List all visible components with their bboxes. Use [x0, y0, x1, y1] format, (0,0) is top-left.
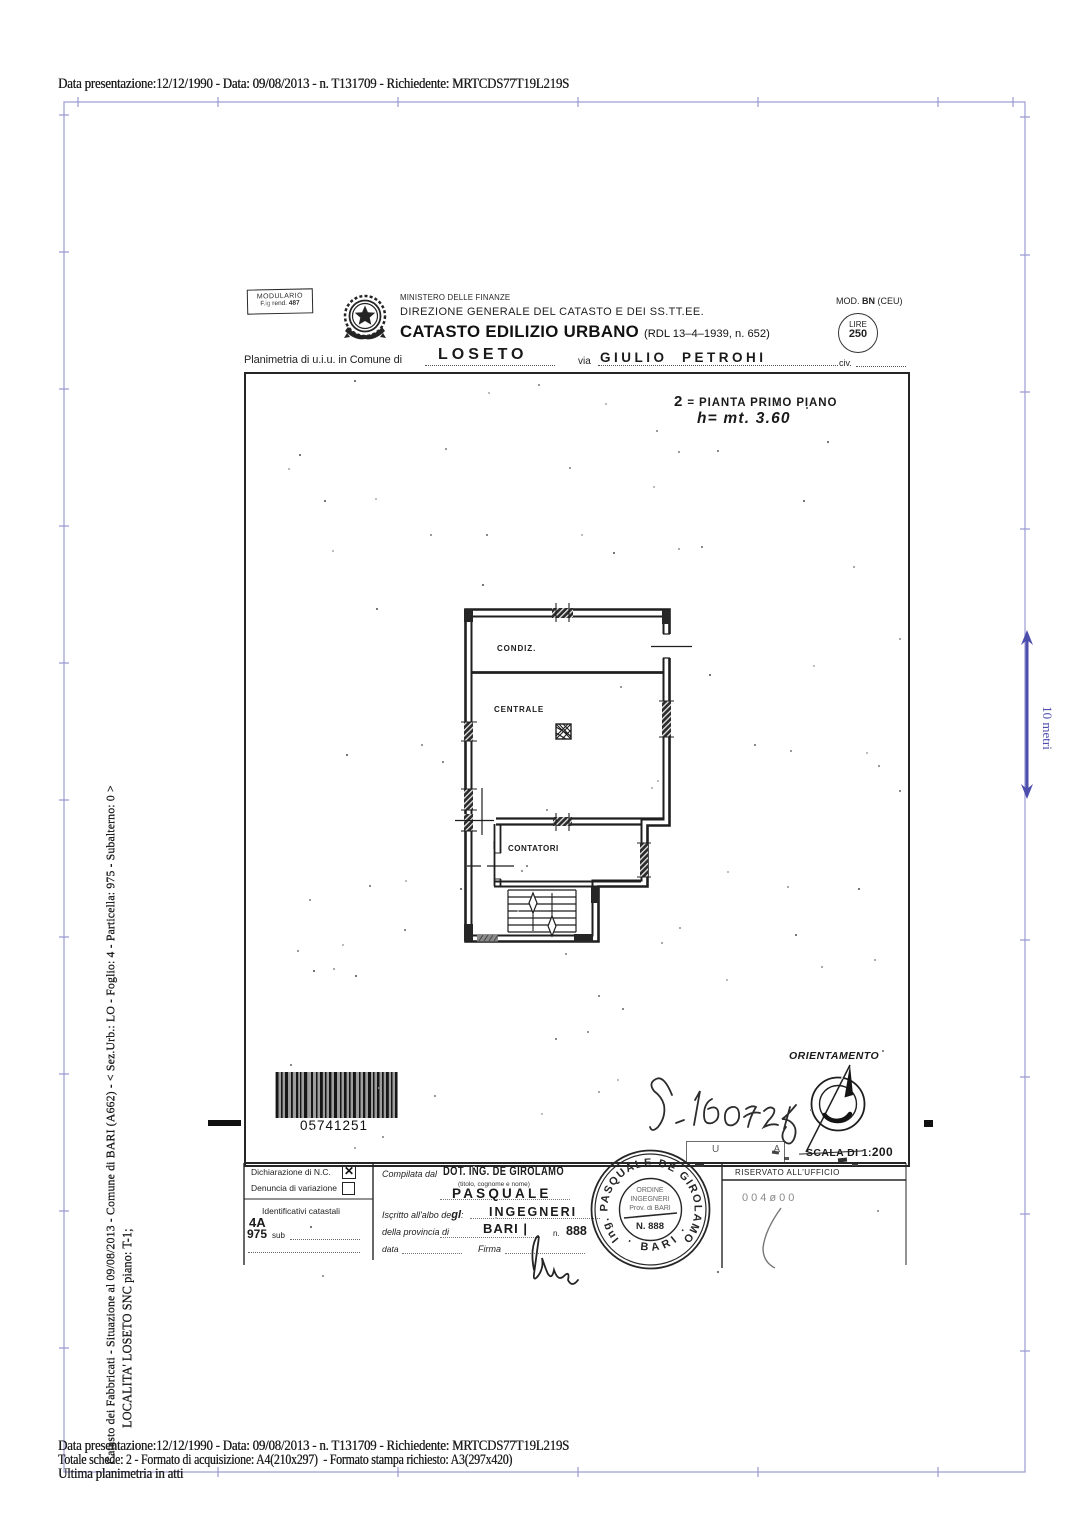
svg-text:ORDINE: ORDINE	[636, 1187, 664, 1194]
svg-text:N. 888: N. 888	[636, 1221, 664, 1232]
svg-text:CONTATORI: CONTATORI	[508, 844, 559, 853]
svg-text:INGEGNERI: INGEGNERI	[630, 1196, 669, 1203]
svg-text:CENTRALE: CENTRALE	[494, 705, 544, 714]
svg-text:Prov. di BARI: Prov. di BARI	[629, 1205, 671, 1212]
svg-text:CONDIZ.: CONDIZ.	[497, 644, 536, 653]
